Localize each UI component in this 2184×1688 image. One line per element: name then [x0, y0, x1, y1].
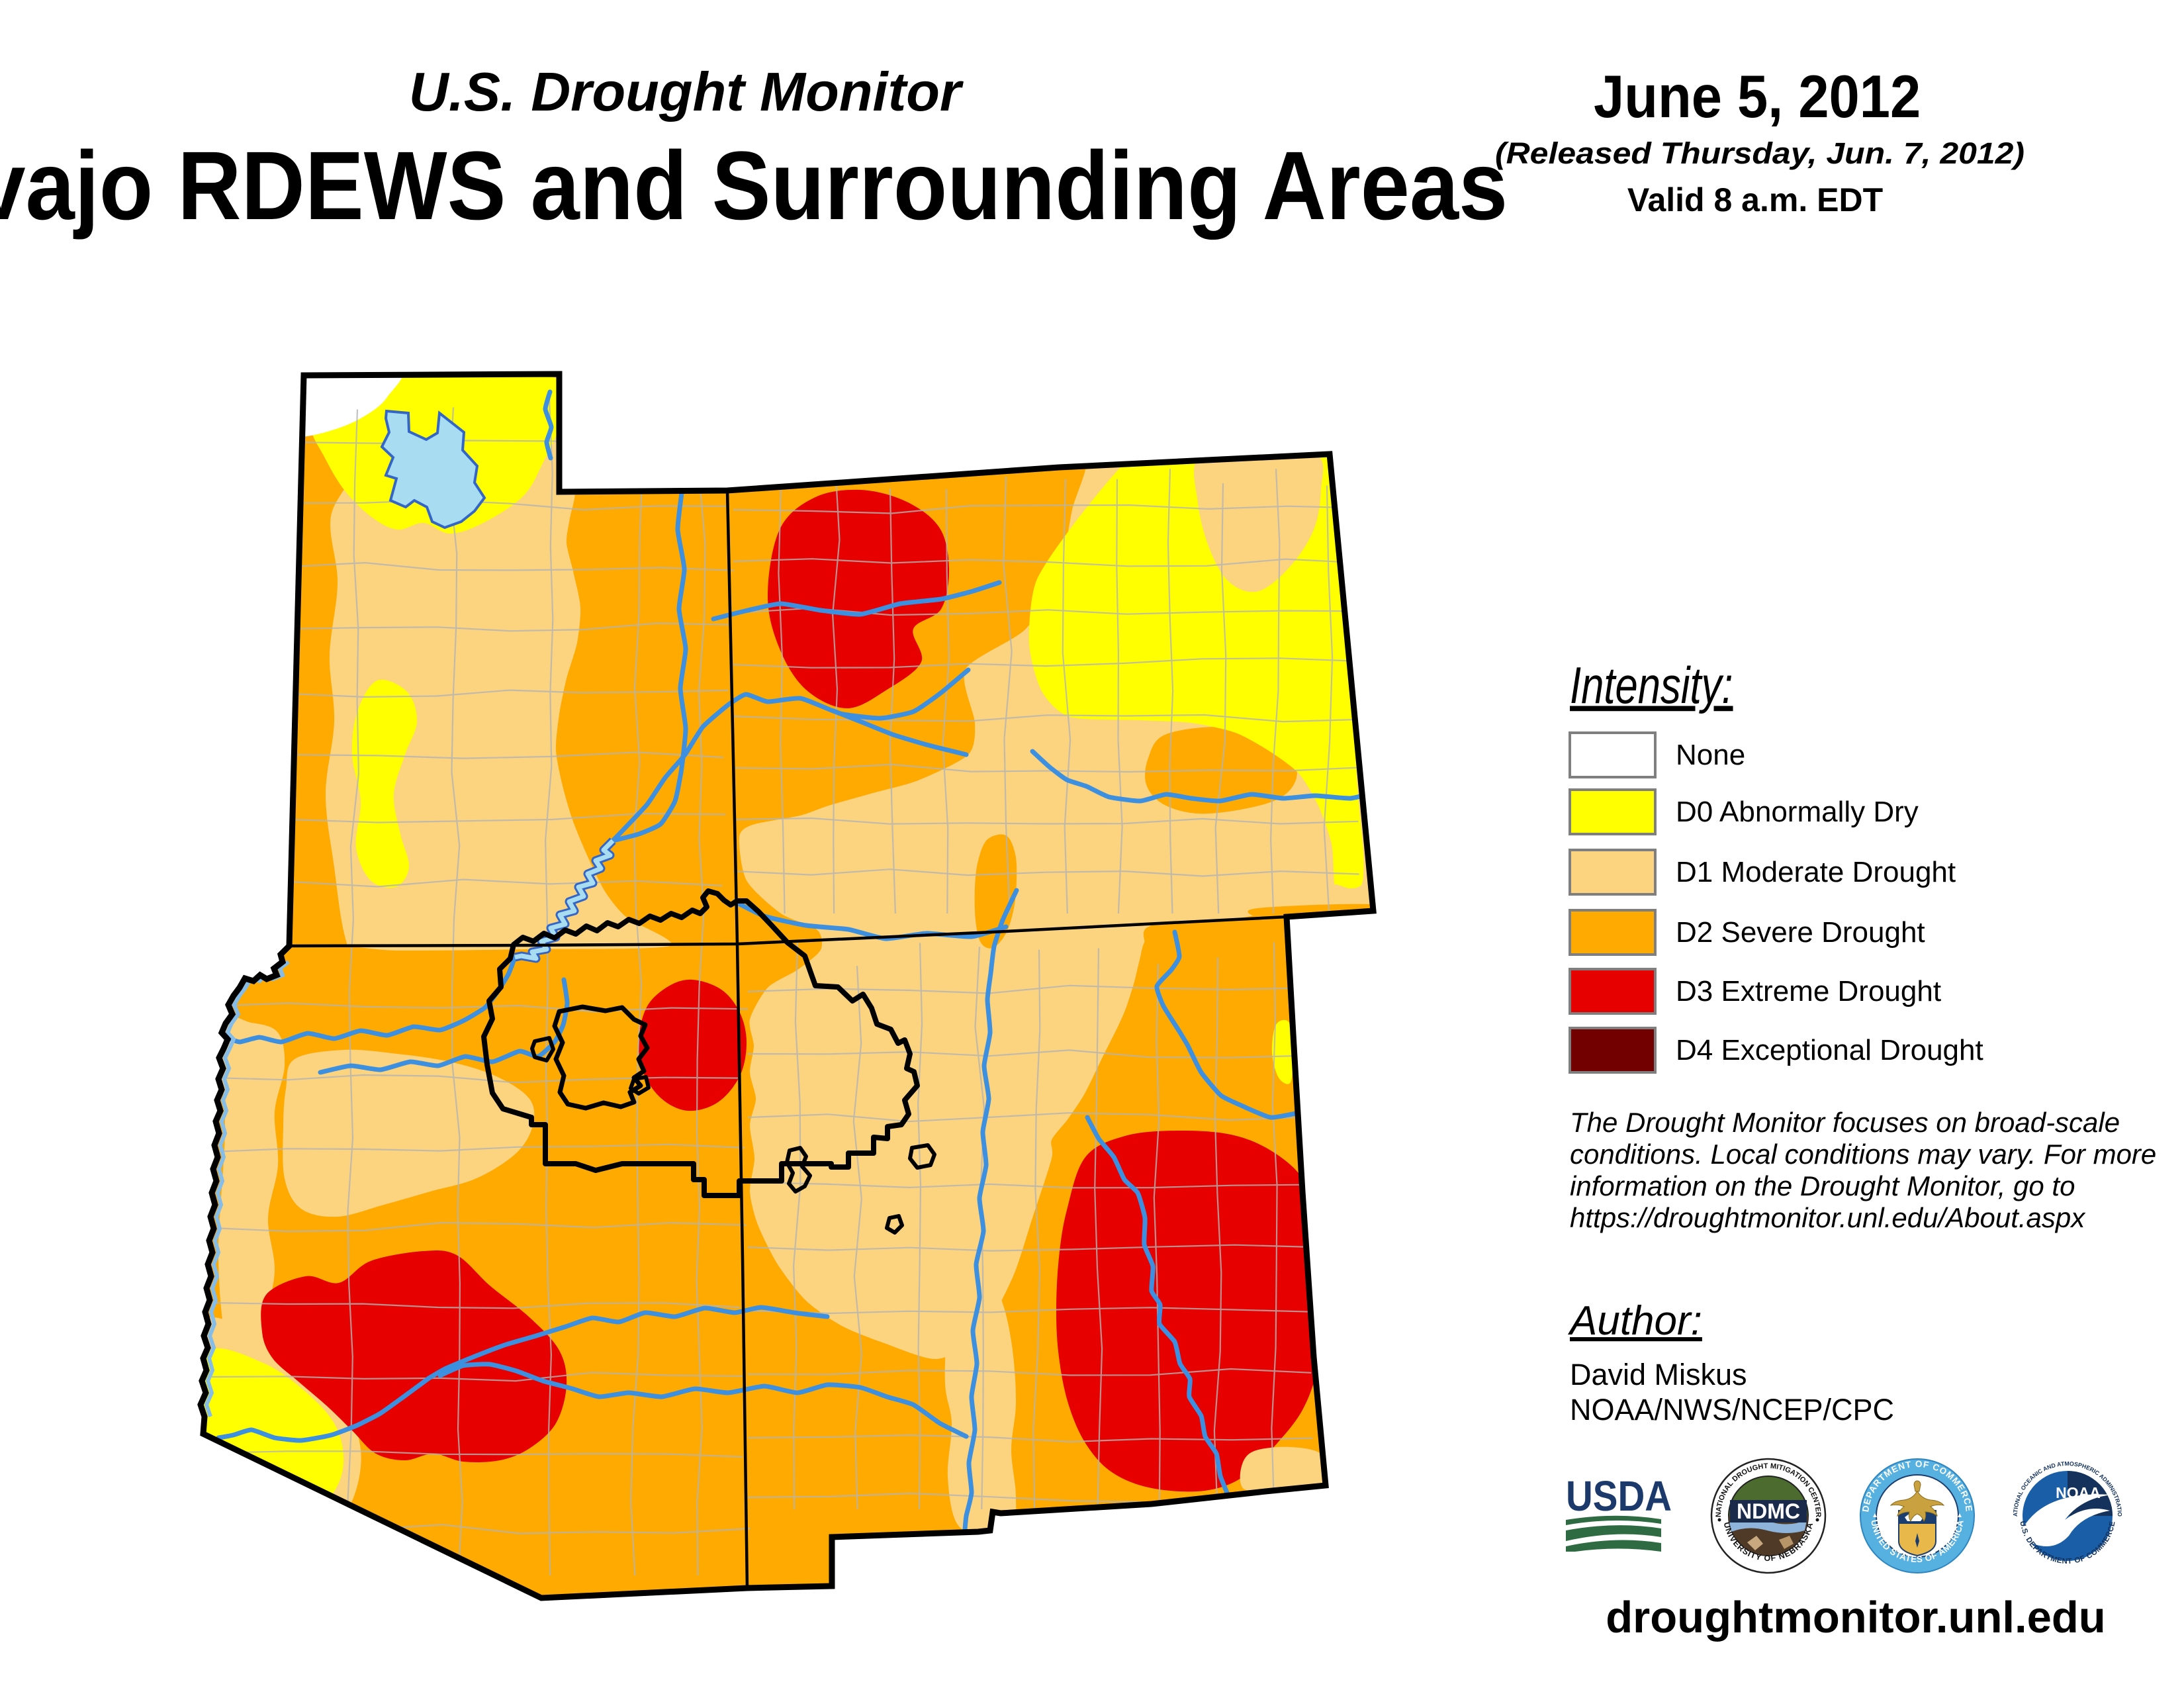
svg-text:(Released Thursday, Jun. 7, 20: (Released Thursday, Jun. 7, 2012) — [1495, 137, 2025, 170]
svg-text:June 5, 2012: June 5, 2012 — [1594, 64, 1921, 130]
svg-text:conditions. Local conditions m: conditions. Local conditions may vary. F… — [1570, 1139, 2156, 1170]
svg-text:David Miskus: David Miskus — [1570, 1358, 1747, 1391]
svg-text:information on the Drought Mon: information on the Drought Monitor, go t… — [1570, 1170, 2075, 1201]
svg-text:U.S. Drought Monitor: U.S. Drought Monitor — [409, 61, 964, 122]
svg-text:https://droughtmonitor.unl.edu: https://droughtmonitor.unl.edu/About.asp… — [1570, 1202, 2086, 1233]
svg-text:NOAA/NWS/NCEP/CPC: NOAA/NWS/NCEP/CPC — [1570, 1393, 1894, 1427]
svg-text:USDA: USDA — [1566, 1472, 1672, 1520]
svg-text:D2 Severe Drought: D2 Severe Drought — [1676, 916, 1925, 949]
svg-text:None: None — [1676, 739, 1745, 771]
svg-text:D1 Moderate Drought: D1 Moderate Drought — [1676, 856, 1956, 888]
svg-text:D4 Exceptional Drought: D4 Exceptional Drought — [1676, 1034, 1983, 1066]
svg-text:Valid 8 a.m. EDT: Valid 8 a.m. EDT — [1627, 181, 1883, 218]
svg-text:droughtmonitor.unl.edu: droughtmonitor.unl.edu — [1606, 1593, 2105, 1642]
svg-text:Author:: Author: — [1567, 1298, 1702, 1344]
svg-text:D0 Abnormally Dry: D0 Abnormally Dry — [1676, 796, 1919, 828]
svg-text:Intensity:: Intensity: — [1570, 656, 1733, 714]
svg-text:NDMC: NDMC — [1737, 1499, 1800, 1523]
svg-text:D3 Extreme Drought: D3 Extreme Drought — [1676, 975, 1941, 1008]
svg-text:The Drought Monitor focuses on: The Drought Monitor focuses on broad-sca… — [1570, 1107, 2120, 1138]
svg-text:Navajo RDEWS and Surrounding A: Navajo RDEWS and Surrounding Areas — [0, 131, 1508, 240]
svg-text:NOAA: NOAA — [2056, 1484, 2101, 1501]
